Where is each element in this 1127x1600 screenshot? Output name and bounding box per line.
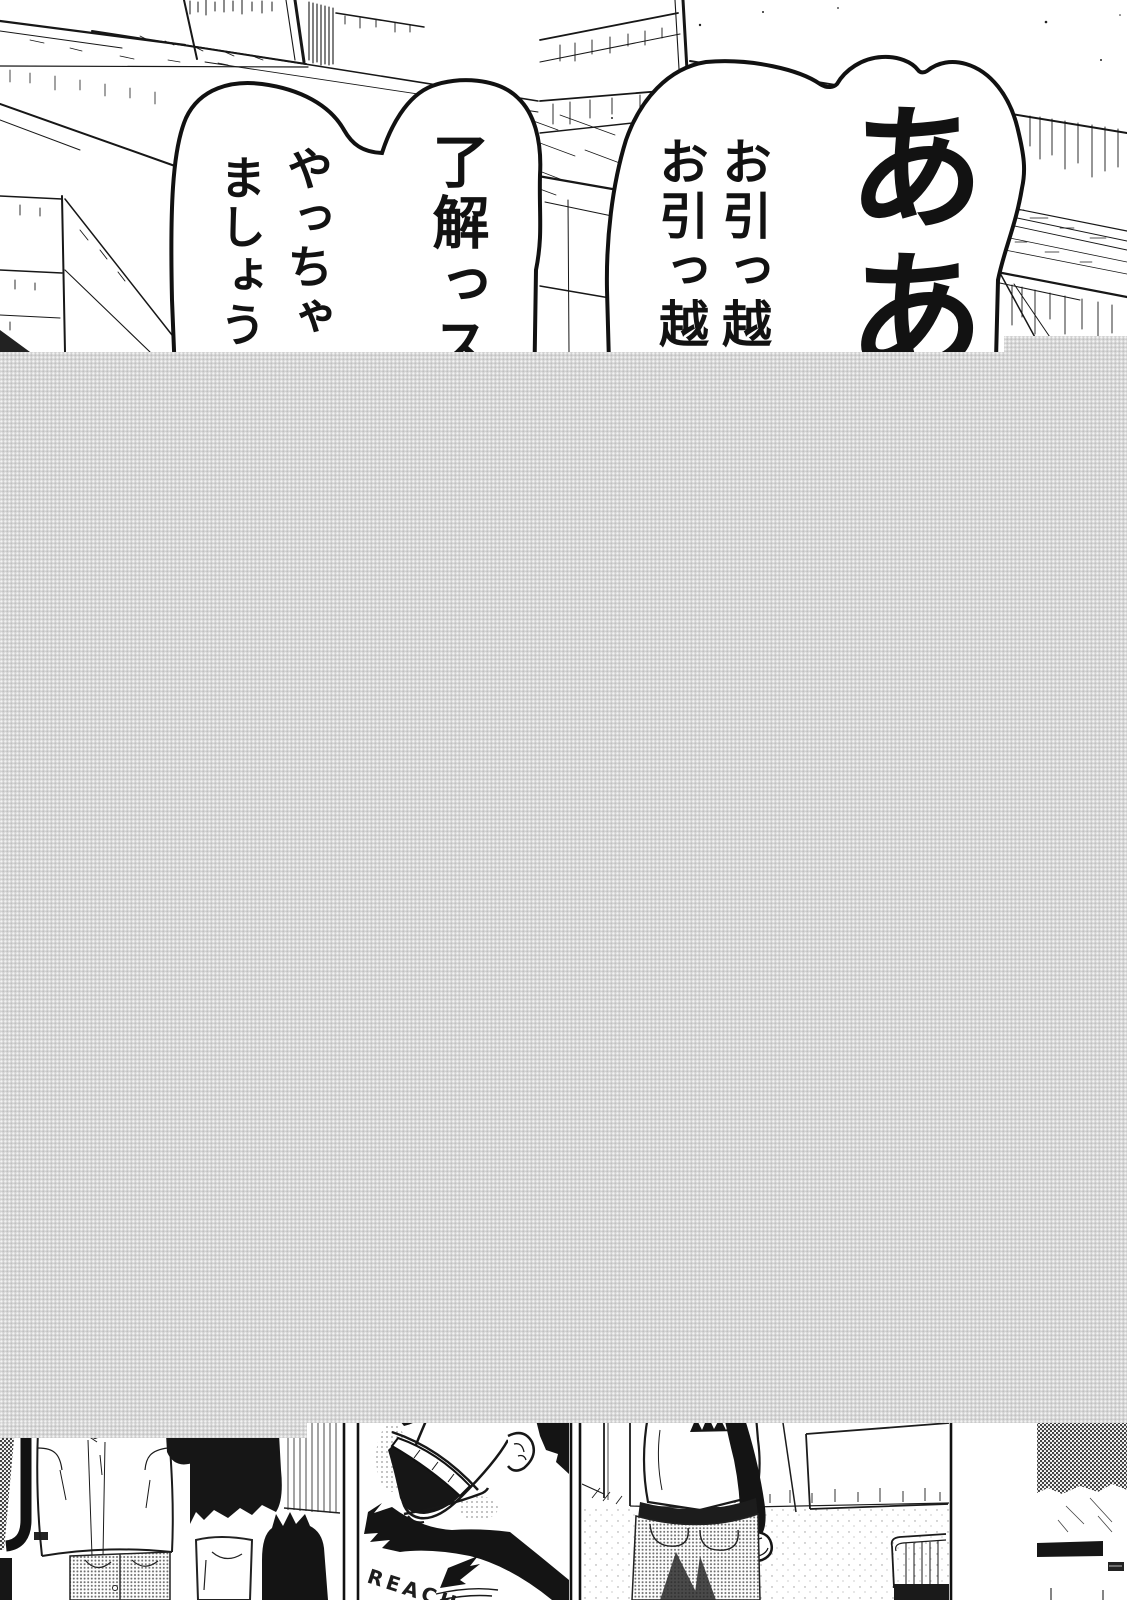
panel-people-from-behind xyxy=(0,1416,340,1600)
panel-laughing-man: REACH xyxy=(364,1416,569,1600)
unloaded-image-placeholder xyxy=(0,352,1127,1423)
unloaded-image-placeholder-step-top xyxy=(1004,336,1127,352)
unloaded-image-placeholder-step-bottom xyxy=(0,1423,307,1438)
panel-halftone-corner xyxy=(1037,1416,1127,1600)
manga-page: ああ お引っ越 お引っ越 了解っス やっちゃ ましょう xyxy=(0,0,1127,1600)
panel-bending-person xyxy=(582,1416,949,1600)
